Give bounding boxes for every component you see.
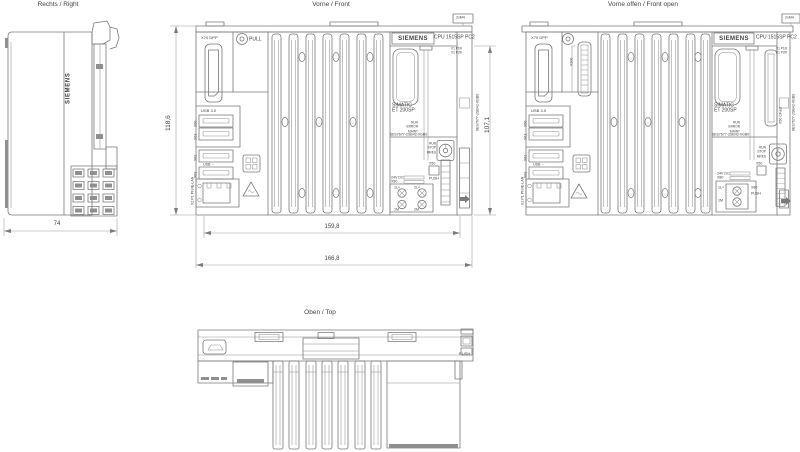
led-error-label: ERROR [406,125,418,128]
brand-logo-text: SIEMENS [714,36,754,42]
cpu-model-label: CPU 1515SP PC2 [756,35,776,40]
header-connector-label: X300 [570,58,574,66]
mode-run-label: RUN [424,142,436,145]
product-label-2: ET 200SP [714,108,737,113]
module-window [715,49,740,105]
mount-tag-label: 2xM4 [785,16,794,20]
lock-screw-icon [563,34,574,45]
mode-selector-switch [437,141,454,161]
displayport-label: X70 DPP [531,36,548,40]
mode-stop-label: STOP [754,150,766,153]
mode-selector-switch [770,144,787,164]
usb-port-x62 [529,150,563,162]
push-label: PUSH [459,352,470,356]
right-view-art [4,21,119,236]
usb-x61-label: X61 [194,134,198,140]
usb-x60-label: X60 [194,121,198,127]
pin-2m-label: 2M [414,208,419,212]
card-eject-button [429,166,439,175]
view-title-front: Vorne / Front [276,2,386,9]
pin-header-connector [578,42,591,96]
mode-run-label: RUN [754,146,766,149]
dim-right-width: 74 [46,221,68,227]
port-sub2-label: X1 P2R [450,51,462,54]
top-latch [303,338,359,359]
dim-front-height: 118,6 [166,115,173,131]
port-sub2-label: X1 P2R [775,51,787,54]
usb-port-x60 [529,115,563,127]
brand-logo-text: SIEMENS [392,36,434,42]
pull-lock-icon [237,34,248,45]
usb2-label: USB ↔ [533,163,545,167]
rj45-port-icon [196,179,239,207]
usb-x62-label: X62 [194,155,198,161]
dim-front-right-height: 107,1 [485,117,492,133]
din-rail-latch [92,21,110,44]
usb2-label: USB ↔ [203,163,215,167]
push-label: PUSH [429,177,439,181]
view-title-top: Oben / Top [270,310,370,317]
supply-label-2: X80 [717,176,723,180]
keypad-icon [243,155,260,172]
pin-1m-label: 1M [394,208,399,212]
cooling-fins [601,34,710,213]
keypad-icon [573,155,590,172]
card-slot-label: X50 [756,162,762,166]
displayport-connector-icon [535,44,552,102]
article-number-label: 6ES7677-2SB42-0GB0 [390,133,427,137]
lan-label: X2 P1 PN/IE-LAN [191,177,195,205]
article-number-vertical: 6ES7677-2SB42-0GB0 [792,94,796,131]
led-run-label: RUN [728,121,740,124]
card-slot-label: X50 [429,162,435,166]
article-number-label: 6ES7677-2SB42-0GB0 [712,133,749,137]
dp-cutout [203,340,226,354]
line-art [0,0,800,452]
mode-stop-label: STOP [424,146,436,149]
displayport-connector-icon [205,44,222,102]
cpu-model-label: CPU 1515SP PC2 [434,35,454,40]
usb-x61-label: X61 [524,134,528,140]
product-label-2: ET 200SP [392,108,415,113]
pin-1l-label: 1L+ [394,186,400,190]
pin-1l-label: 1L+ [718,186,724,190]
view-title-front-open: Vorne offen / Front open [588,2,698,9]
cfast-slot [765,50,777,126]
article-number-vertical: 6ES7677-2SB42-0GB0 [476,94,480,131]
cooling-fins [272,34,383,213]
rj45-port-icon [526,179,569,207]
pin-1m-label: 1M [718,199,723,203]
pin-2l-label: 2L+ [414,186,420,190]
mount-tag-label: 2xM4 [456,16,465,20]
usb-port-x61 [199,128,233,140]
dimension-drawing-canvas: Rechts / Right SIEMENS 74 Vorne / Front … [0,0,800,452]
dim-front-outer-width: 166,8 [308,256,356,262]
usb-x60-label: X60 [524,121,528,127]
cooling-fins-top [273,361,381,449]
card-eject-button [757,166,766,175]
displayport-label: X70 DPP [201,36,218,40]
push-arrow-icon [460,195,470,203]
usb-port-x62 [199,150,233,162]
usb-port-x63 [199,167,233,179]
supply-label-1: 24V DC [391,176,404,180]
usb3-label: USB 3.0 [201,109,216,113]
led-run-label: RUN [406,121,418,124]
usb3-label: USB 3.0 [531,109,546,113]
supply-label-2: X80 [391,180,397,184]
mode-mres-label: MRES [754,155,766,158]
cfast-slot-label: X50 CFast [779,107,783,124]
usb-x62-label: X62 [524,155,528,161]
hot-surface-warning-icon [571,184,587,198]
supply-x80-label: X80 [751,186,757,190]
led-error-label: ERROR [728,125,740,128]
top-view-art [198,329,473,449]
dim-front-inner-width: 159,8 [308,224,356,230]
mode-mres-label: MRES [424,151,436,154]
usb-port-x63 [529,167,563,179]
pull-label: PULL [249,37,262,42]
module-window [393,49,418,105]
front-open-view-art [522,14,800,215]
brand-vertical-label: SIEMENS [65,72,71,104]
hot-surface-warning-icon [243,182,259,196]
usb-port-x60 [199,115,233,127]
lan-label: X2 P1 PN/IE-LAN [521,177,525,205]
push-label: PUSH [751,192,761,196]
usb-port-x61 [529,128,563,140]
supply-label-1: 24V DC [717,172,730,176]
view-title-right: Rechts / Right [8,2,108,9]
